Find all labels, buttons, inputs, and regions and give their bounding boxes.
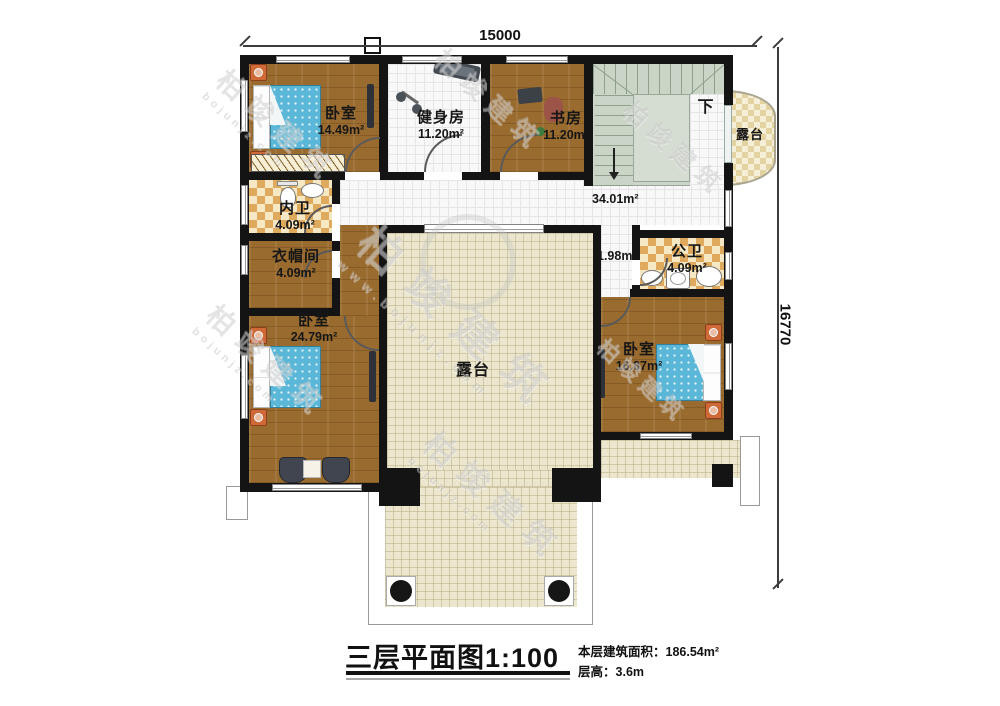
area-label-corridor: 1.98m² <box>597 249 637 263</box>
terrace-right-railing <box>740 436 760 506</box>
window <box>725 252 732 280</box>
tv <box>369 351 376 402</box>
wall <box>712 464 733 487</box>
room-label-public-bath: 公卫4.09m² <box>667 244 707 275</box>
window <box>276 56 350 63</box>
floor-height-value: 3.6m <box>616 665 645 679</box>
room-label-cloakroom: 衣帽间4.09m² <box>272 249 320 280</box>
armchair <box>322 457 350 483</box>
room-label-bedroom-left: 卧室24.79m² <box>291 313 338 344</box>
bed-pillows <box>703 344 721 401</box>
wall <box>380 172 424 180</box>
stairs-direction-arrowhead <box>609 172 619 180</box>
floor-area-stat: 本层建筑面积：186.54m² <box>578 641 719 660</box>
room-label-terrace-round: 露台 <box>736 128 764 143</box>
window <box>272 484 362 491</box>
window <box>241 245 248 275</box>
floor-area-value: 186.54m² <box>666 645 720 659</box>
window <box>725 190 732 227</box>
room-label-inner-bath: 内卫4.09m² <box>275 201 315 232</box>
dimension-right-value: 16770 <box>777 295 794 355</box>
wall <box>630 289 724 297</box>
wall <box>332 278 340 316</box>
window <box>241 185 248 225</box>
floor-area-label: 本层建筑面积： <box>578 645 666 659</box>
dimension-top-value: 15000 <box>479 27 521 44</box>
area-label-hallway: 34.01m² <box>592 192 639 206</box>
wall <box>240 233 332 241</box>
terrace-door-glass <box>724 105 732 163</box>
title-underline-light <box>346 678 570 680</box>
window <box>640 433 692 439</box>
room-label-gym: 健身房11.20m² <box>417 110 465 141</box>
window <box>725 343 732 390</box>
nightstand <box>705 324 722 341</box>
nightstand <box>250 409 267 426</box>
floor-height-label: 层高： <box>578 665 616 679</box>
column <box>548 580 570 602</box>
nightstand <box>705 402 722 419</box>
stairs-down-label: 下 <box>697 99 714 117</box>
wall <box>538 172 593 180</box>
floor-height-stat: 层高：3.6m <box>578 661 644 680</box>
wall <box>379 468 420 506</box>
wall <box>462 172 500 180</box>
wall <box>724 55 733 105</box>
side-table <box>303 460 321 478</box>
plan-title: 三层平面图1:100 <box>345 636 559 675</box>
dimension-tick <box>751 35 762 46</box>
stairs-direction-arrow <box>613 148 615 174</box>
wall <box>379 55 388 172</box>
floor-plan-canvas: 卧室14.49m² 健身房11.20m² 书房11.20m² 露台 34.01m… <box>0 0 1000 706</box>
wall <box>552 468 601 502</box>
wall <box>332 241 340 251</box>
wall <box>632 230 724 238</box>
column <box>390 580 412 602</box>
blanket-fold <box>688 344 704 382</box>
wall <box>332 180 340 204</box>
window <box>506 56 568 63</box>
dimension-line-top <box>243 45 757 47</box>
room-label-bedroom-top: 卧室14.49m² <box>318 106 365 137</box>
tv <box>367 84 374 128</box>
dumbbell <box>396 92 406 102</box>
title-underline <box>346 671 570 675</box>
room-label-study: 书房11.20m² <box>543 111 589 142</box>
